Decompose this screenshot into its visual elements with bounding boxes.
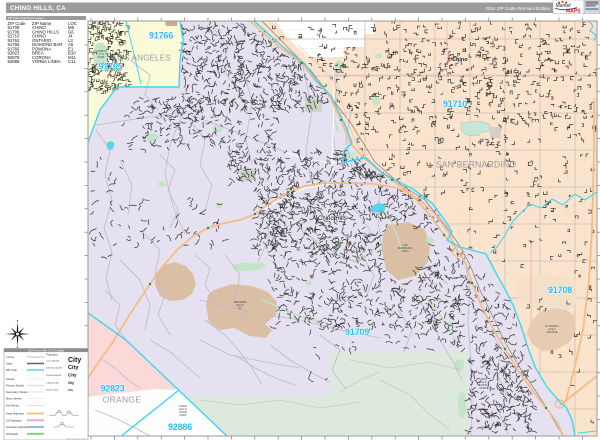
svg-text:Chino Hills: Chino Hills bbox=[318, 216, 347, 222]
svg-text:SAN BERNARDINO: SAN BERNARDINO bbox=[436, 160, 517, 170]
svg-text:US Highways: US Highways bbox=[6, 418, 22, 422]
svg-text:92823: 92823 bbox=[100, 384, 124, 394]
svg-text:92886: 92886 bbox=[8, 59, 21, 64]
svg-text:91709: 91709 bbox=[345, 327, 369, 337]
svg-text:Over 250,000: Over 250,000 bbox=[46, 360, 60, 363]
svg-text:CC: CC bbox=[238, 306, 242, 310]
svg-text:ZIP Code: ZIP Code bbox=[6, 368, 17, 372]
svg-text:Under 5,000: Under 5,000 bbox=[46, 389, 59, 392]
svg-text:100,000-250,000: 100,000-250,000 bbox=[46, 368, 63, 370]
svg-text:G&CC: G&CC bbox=[401, 249, 409, 253]
svg-text:91766: 91766 bbox=[149, 31, 173, 41]
svg-text:Streets: Streets bbox=[6, 377, 15, 381]
svg-text:County: County bbox=[6, 355, 15, 359]
svg-text:PARK: PARK bbox=[180, 413, 187, 417]
svg-text:92886: 92886 bbox=[168, 422, 192, 432]
svg-text:91710: 91710 bbox=[443, 99, 467, 109]
svg-text:Primary Streets: Primary Streets bbox=[6, 384, 25, 388]
svg-text:Minor Streets: Minor Streets bbox=[6, 397, 22, 401]
svg-text:City: City bbox=[68, 388, 73, 392]
svg-text:City: City bbox=[68, 381, 74, 385]
svg-text:PARK: PARK bbox=[480, 386, 487, 390]
svg-text:MAPS: MAPS bbox=[566, 8, 581, 14]
svg-text:Population: Population bbox=[46, 354, 58, 357]
svg-text:Secondary Streets: Secondary Streets bbox=[6, 390, 28, 394]
svg-text:City: City bbox=[68, 357, 81, 364]
svg-text:COURSE: COURSE bbox=[546, 330, 557, 334]
svg-text:City: City bbox=[68, 373, 77, 378]
svg-text:PARK: PARK bbox=[98, 55, 105, 59]
svg-text:ZIP Code Index/Grid Locator: ZIP Code Index/Grid Locator bbox=[8, 16, 44, 20]
svg-text:2024 ZIP Code Premium Edition: 2024 ZIP Code Premium Edition bbox=[486, 6, 551, 11]
svg-text:91765: 91765 bbox=[98, 62, 122, 72]
svg-text:2024 Chino Hills, CA City Maps: 2024 Chino Hills, CA City Maps bbox=[28, 348, 65, 352]
svg-text:CHINO HILLS, CA: CHINO HILLS, CA bbox=[10, 5, 66, 12]
svg-text:25,000-100,000: 25,000-100,000 bbox=[46, 375, 62, 377]
svg-text:Toll Roads: Toll Roads bbox=[6, 432, 19, 436]
svg-text:City: City bbox=[68, 365, 79, 371]
svg-text:C11: C11 bbox=[68, 59, 76, 64]
svg-text:State: State bbox=[6, 362, 13, 366]
svg-text:91708: 91708 bbox=[548, 285, 572, 295]
svg-text:YORBA LINDA: YORBA LINDA bbox=[32, 59, 61, 64]
svg-text:Interstate Highways: Interstate Highways bbox=[6, 425, 29, 429]
svg-text:Chino: Chino bbox=[452, 57, 468, 63]
svg-text:ORANGE: ORANGE bbox=[103, 395, 142, 405]
svg-text:State Highways: State Highways bbox=[6, 412, 25, 416]
svg-text:Exit Ramps: Exit Ramps bbox=[6, 404, 20, 408]
svg-text:5,000-25,000: 5,000-25,000 bbox=[46, 383, 60, 385]
